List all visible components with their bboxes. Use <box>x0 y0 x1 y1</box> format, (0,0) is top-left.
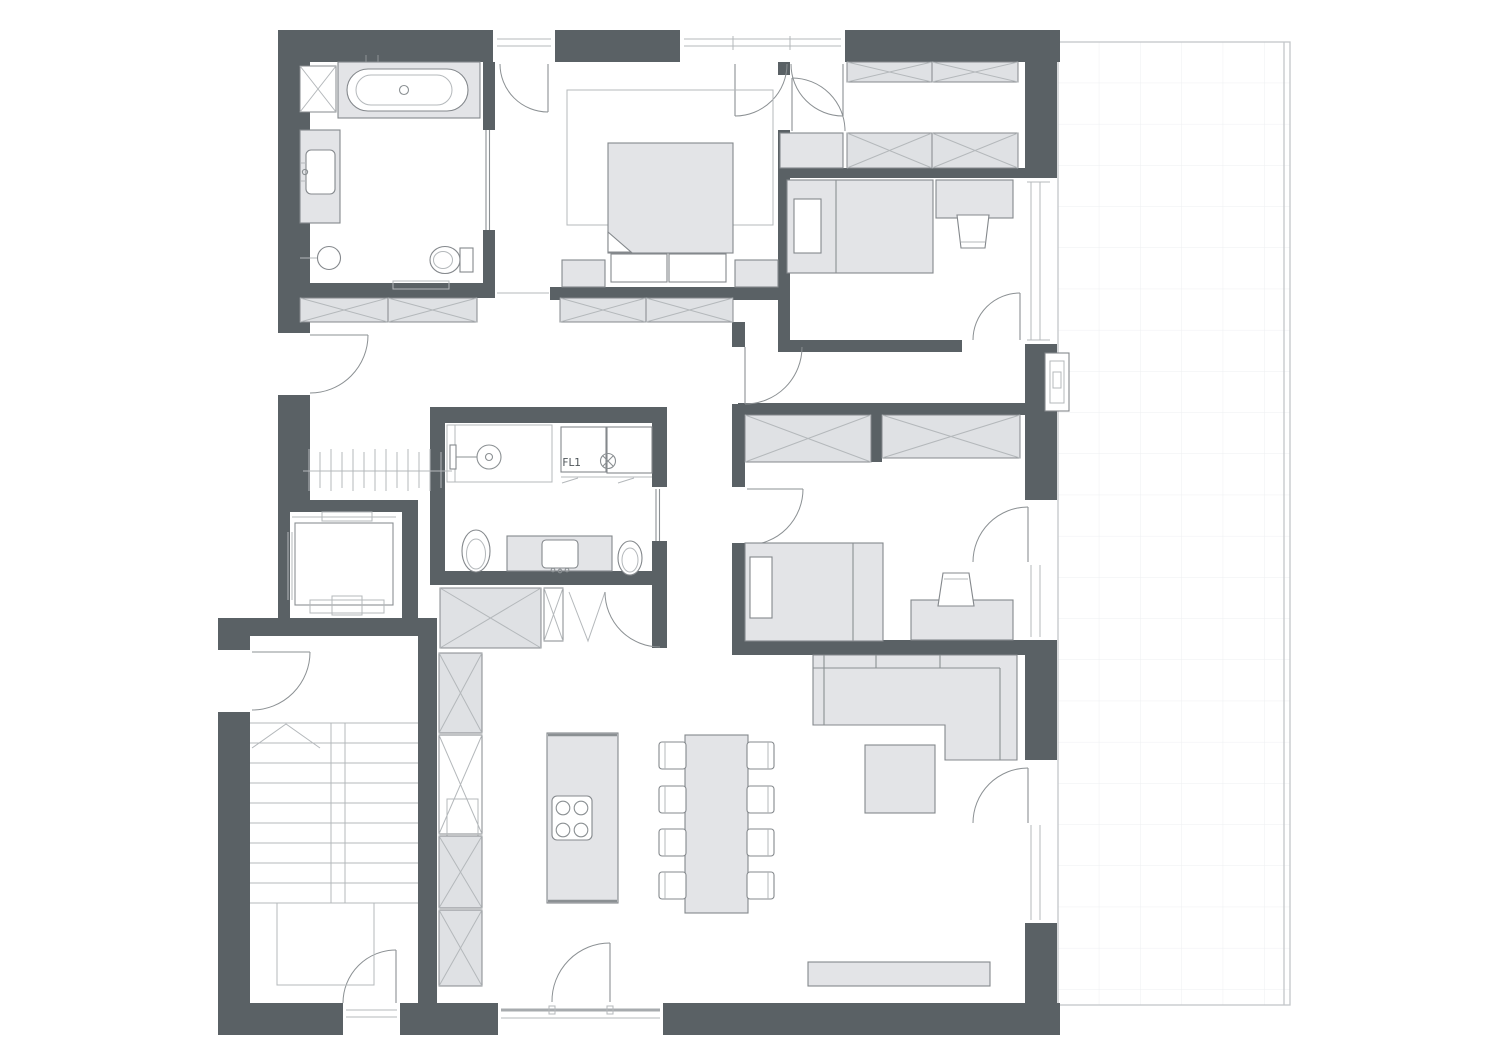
pillow-right-icon <box>669 254 726 282</box>
bedroom1-window <box>1025 178 1057 344</box>
vanity-sink-icon <box>300 130 340 223</box>
storage-closet-x-icon <box>440 588 541 648</box>
vanity2-icon <box>507 536 612 573</box>
wall-wardrobe-stub <box>871 415 882 462</box>
tv-sideboard-icon <box>808 962 990 986</box>
wall-bedroom2-west-lower <box>732 543 745 655</box>
terrace-wall-light-icon <box>1045 353 1069 411</box>
terrace <box>1058 42 1290 1005</box>
toilet2-icon <box>462 530 490 572</box>
wall-stairs-kitchen <box>418 618 437 1003</box>
wall-bedroom2-north <box>738 403 1025 415</box>
bed1-pillow-icon <box>794 199 821 253</box>
bed2-pillow-icon <box>750 557 772 618</box>
chair1-icon <box>957 215 989 248</box>
floor-plan-drawing: FL1 <box>0 0 1500 1060</box>
wall-elevator-east <box>402 500 418 636</box>
wardrobe-row-bottom-icon <box>847 133 1018 168</box>
bathtub-icon <box>338 55 480 118</box>
toilet-icon <box>430 247 473 274</box>
wall-bath2-east-lower <box>652 541 667 585</box>
nightstand-right-icon <box>735 260 778 287</box>
wall-bath1-south <box>278 283 495 298</box>
wardrobe-row-top-icon <box>847 62 1018 82</box>
nightstand-left-icon <box>562 260 605 287</box>
desk1-icon <box>936 180 1013 218</box>
wall-bedroom1-south <box>790 340 962 352</box>
floor-drain-label: FL1 <box>562 457 581 469</box>
chair2-icon <box>938 573 974 606</box>
floor-plan-canvas: FL1 <box>0 0 1500 1060</box>
wall-bath1-right-upper <box>483 62 495 130</box>
terrace-tile-grid <box>1058 42 1290 1005</box>
round-basin-icon <box>318 247 341 270</box>
tall-cabinet-icon <box>300 66 336 112</box>
wall-north <box>278 30 1060 62</box>
wall-master-east-stub <box>778 62 790 75</box>
hall-wardrobe-row-a-icon <box>300 298 477 322</box>
dresser-icon <box>780 133 843 168</box>
tall-cabinet-column-icon <box>439 653 482 986</box>
stairwell-floor <box>218 618 437 1035</box>
wardrobe2-left-icon <box>745 415 871 462</box>
coffee-table-icon <box>865 745 935 813</box>
wall-bath2-west <box>430 407 445 585</box>
double-bed-icon <box>608 143 733 253</box>
wall-bath1-right-lower <box>483 230 495 285</box>
dining-table-icon <box>685 735 748 913</box>
wall-hall-corridor-stub <box>732 322 745 347</box>
wall-bedroom2-west-upper <box>732 404 745 487</box>
wall-bath2-north <box>430 407 667 423</box>
wall-closet-bedroom1 <box>778 168 1025 178</box>
wardrobe2-right-icon <box>882 415 1020 458</box>
narrow-closet-x-icon <box>544 588 563 641</box>
wall-closet-east <box>652 585 667 648</box>
wall-elevator-north <box>278 500 416 512</box>
wc2-icon <box>618 541 642 575</box>
wall-bath2-east-upper <box>652 407 667 487</box>
hall-wardrobe-row-b-icon <box>560 298 733 322</box>
pillow-left-icon <box>611 254 667 282</box>
kitchen-island-icon <box>547 733 618 903</box>
wall-bedroom2-south <box>732 640 1025 655</box>
wall-west-mid <box>278 395 310 500</box>
